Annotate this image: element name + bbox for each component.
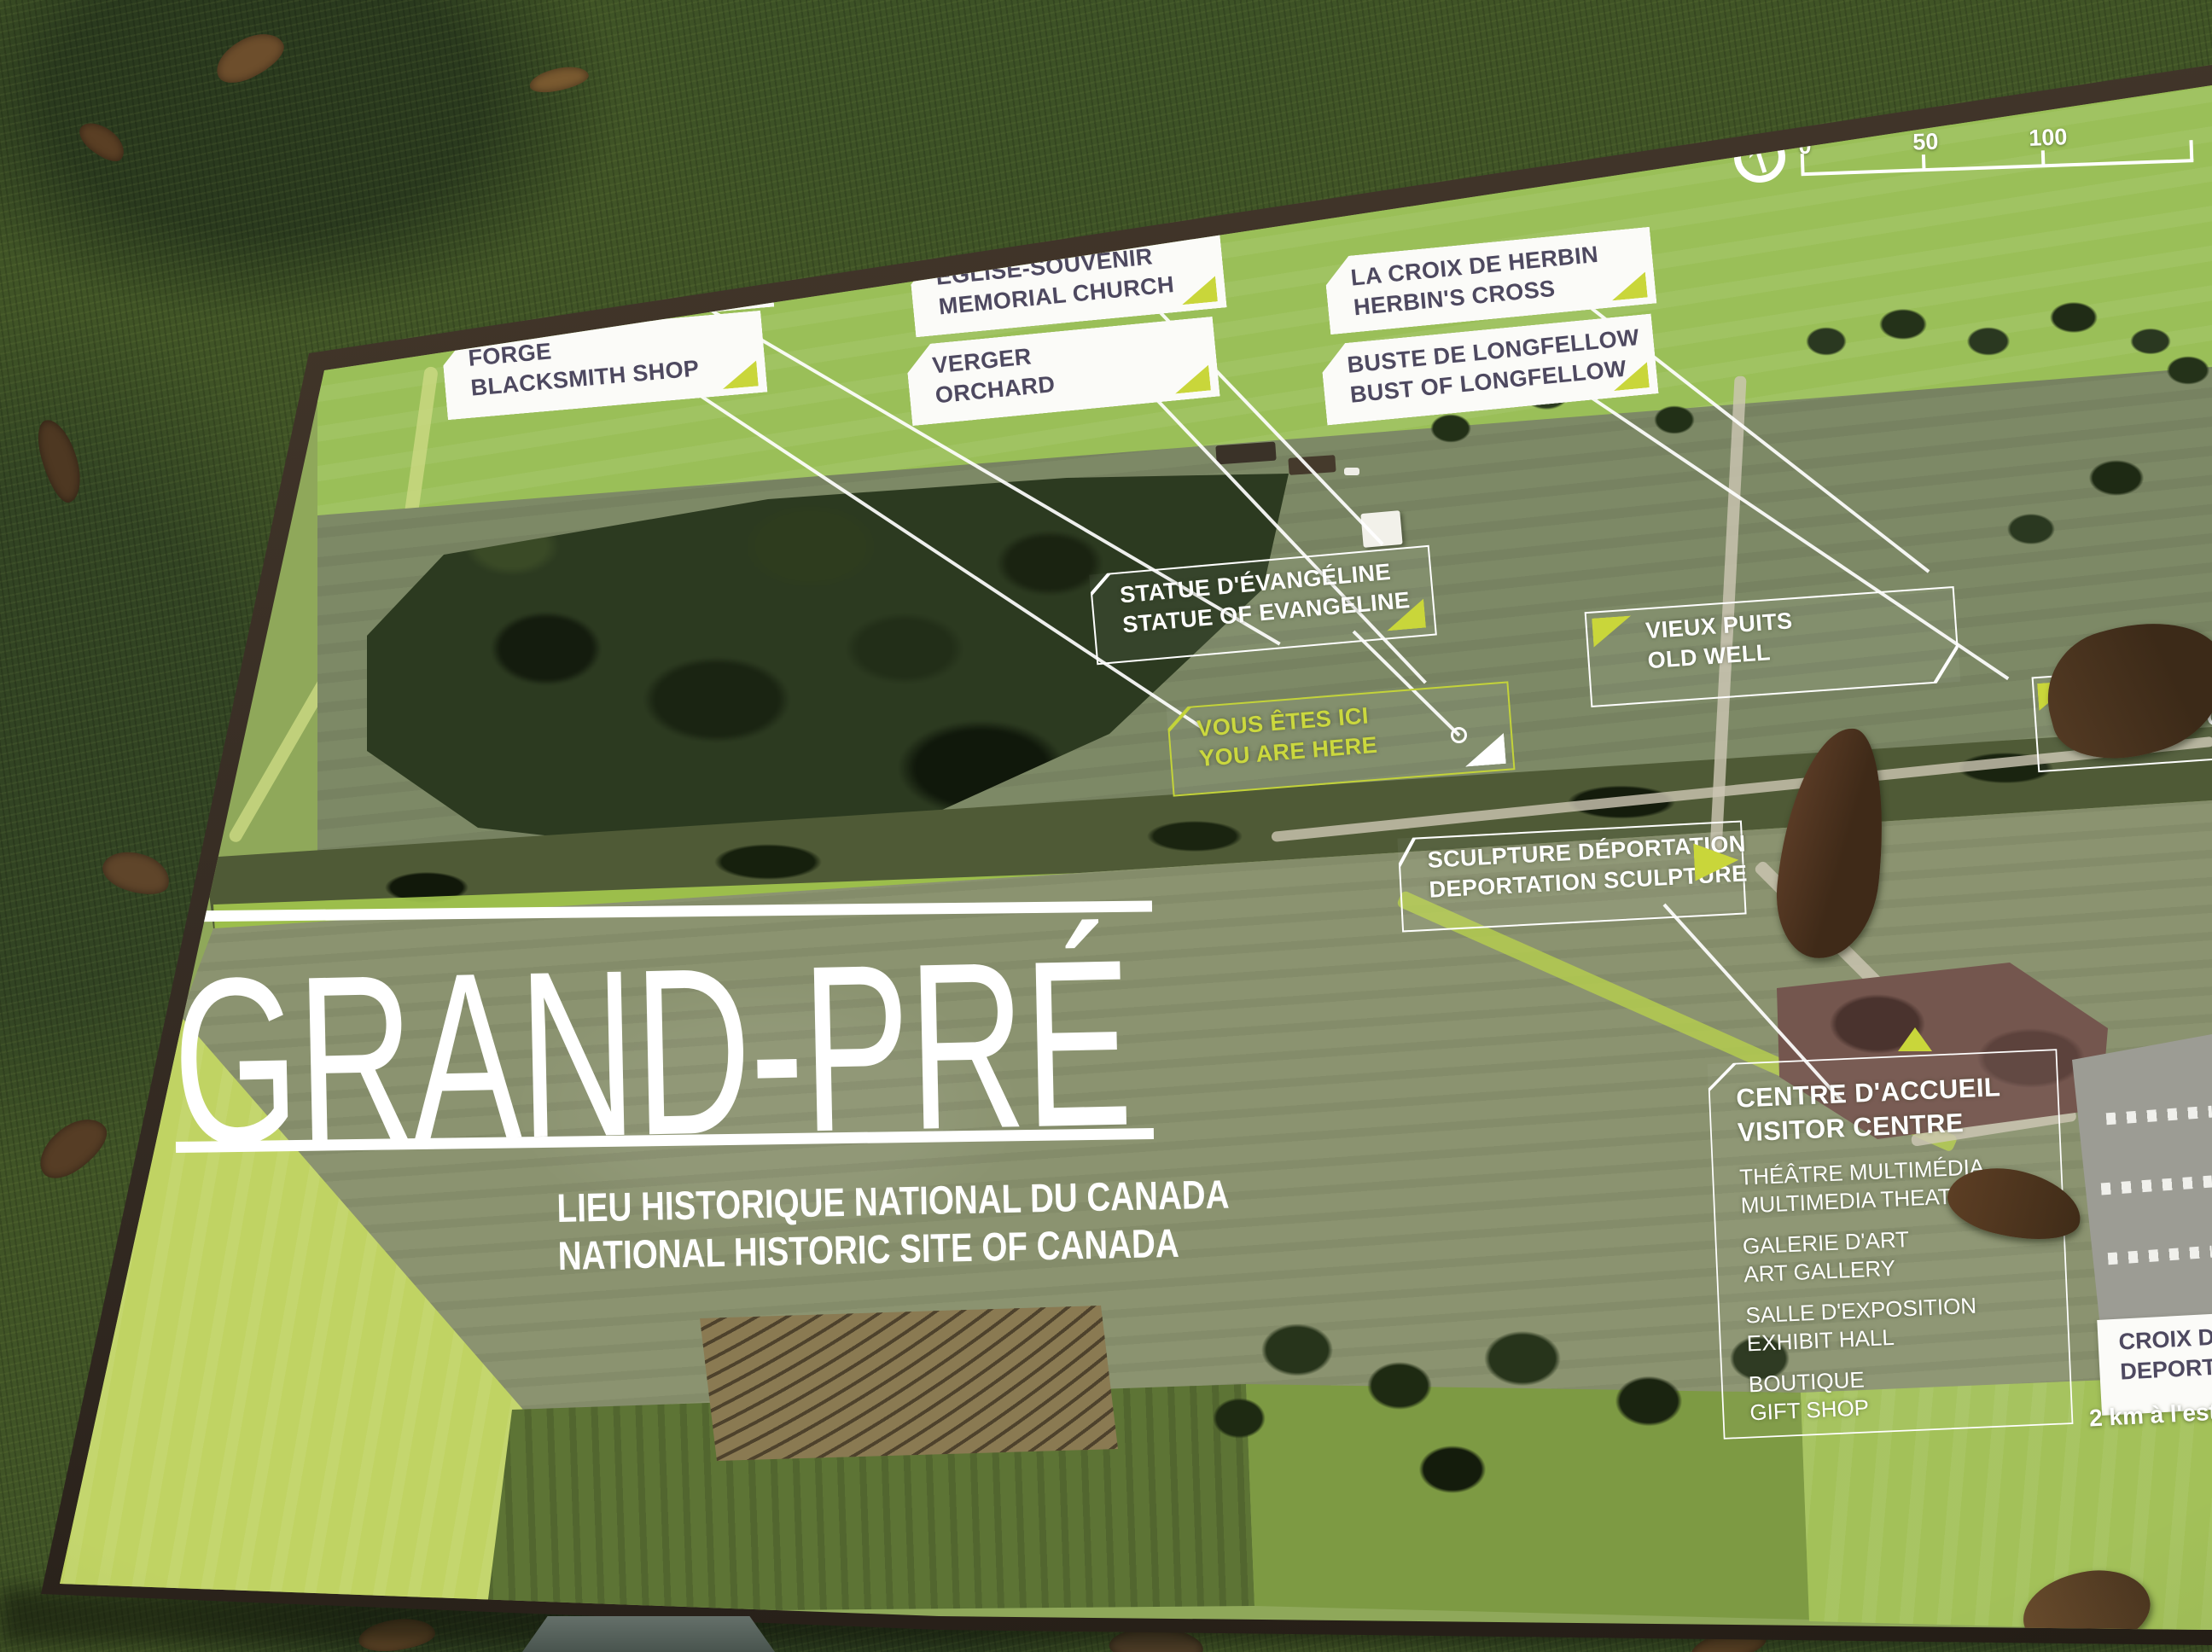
title-marker-triangle-icon xyxy=(75,911,125,957)
marker-triangle-icon xyxy=(720,360,758,389)
callout-kitchen-garden-fr: POTAGER xyxy=(474,240,726,291)
compass-north-label: N xyxy=(1726,99,1787,130)
fallen-leaf xyxy=(98,843,176,904)
site-subtitle: LIEU HISTORIQUE NATIONAL DU CANADA NATIO… xyxy=(556,1167,1378,1280)
scale-tick-label: 100 xyxy=(2029,124,2068,152)
scale-tick xyxy=(1801,154,1805,174)
vc-item-exhibit-hall: SALLE D'EXPOSITION EXHIBIT HALL xyxy=(1745,1288,2053,1358)
photo-of-map-sign: GRAND-PRÉ LIEU HISTORIQUE NATIONAL DU CA… xyxy=(0,0,2212,1652)
marker-triangle-icon xyxy=(1179,276,1218,305)
callout-deportation-sculpture: SCULPTURE DÉPORTATION DEPORTATION SCULPT… xyxy=(1397,821,1746,933)
scale-tick-label: 50 xyxy=(1912,129,1939,156)
scale-tick xyxy=(1922,154,1926,170)
visitor-centre-panel: CENTRE D'ACCUEIL VISITOR CENTRE THÉÂTRE … xyxy=(1708,1049,2074,1439)
fallen-leaf xyxy=(29,1108,116,1188)
sign-support-leg xyxy=(522,1616,775,1652)
scale-tick xyxy=(2189,140,2193,160)
parked-vehicle xyxy=(1344,468,1359,475)
callout-deportation-cross-fr: CROIX DE LA DÉ xyxy=(2118,1318,2212,1357)
fallen-leaf xyxy=(527,63,590,96)
scale-baseline xyxy=(1802,159,2194,176)
fallen-leaf xyxy=(74,114,131,168)
scale-tick xyxy=(2041,150,2046,166)
fallen-leaf xyxy=(32,416,88,507)
fallen-leaf xyxy=(208,25,290,90)
marker-triangle-icon xyxy=(1173,365,1211,394)
marker-triangle-icon xyxy=(1610,272,1648,301)
